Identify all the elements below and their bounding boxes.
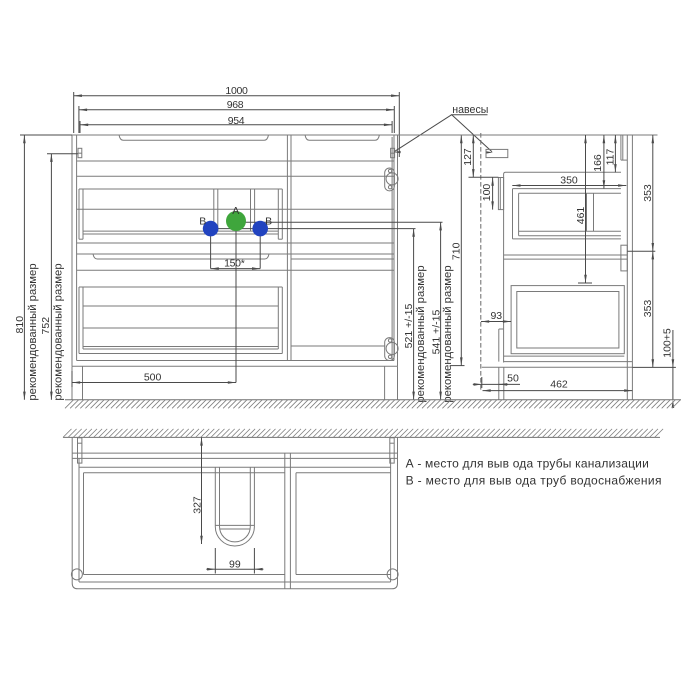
svg-text:В - место для выв ода труб вод: В - место для выв ода труб водоснабжения	[406, 473, 662, 487]
svg-text:50: 50	[507, 373, 519, 385]
svg-text:93: 93	[490, 310, 502, 322]
svg-text:рекомендованный размер: рекомендованный размер	[53, 263, 65, 400]
svg-text:461: 461	[575, 207, 587, 225]
svg-text:рекомендованный размер: рекомендованный размер	[442, 265, 454, 402]
svg-text:353: 353	[642, 184, 654, 202]
svg-text:В: В	[199, 215, 206, 227]
svg-text:127: 127	[462, 148, 474, 166]
svg-text:810: 810	[14, 316, 26, 334]
svg-text:954: 954	[228, 115, 245, 127]
svg-text:навесы: навесы	[452, 104, 488, 116]
svg-text:117: 117	[605, 148, 617, 165]
svg-text:В: В	[265, 215, 272, 227]
svg-text:А - место для выв ода трубы ка: А - место для выв ода трубы канализации	[406, 456, 649, 470]
svg-text:353: 353	[642, 300, 654, 318]
svg-text:1000: 1000	[225, 85, 248, 97]
svg-text:А: А	[232, 205, 239, 217]
svg-text:968: 968	[227, 99, 244, 111]
svg-text:350: 350	[560, 174, 578, 186]
svg-text:462: 462	[550, 378, 568, 390]
svg-text:100+5: 100+5	[662, 328, 674, 358]
svg-text:рекомендованный размер: рекомендованный размер	[415, 265, 427, 402]
svg-text:166: 166	[592, 154, 604, 172]
svg-text:541 +/-15: 541 +/-15	[430, 310, 442, 355]
svg-text:100: 100	[481, 184, 493, 202]
svg-text:752: 752	[40, 317, 52, 335]
svg-text:150*: 150*	[224, 257, 245, 269]
svg-text:99: 99	[229, 558, 241, 570]
svg-text:521 +/-15: 521 +/-15	[403, 304, 415, 349]
svg-text:рекомендованный размер: рекомендованный размер	[27, 263, 39, 400]
svg-text:710: 710	[451, 242, 463, 260]
svg-text:500: 500	[144, 372, 162, 384]
svg-text:327: 327	[192, 496, 204, 514]
